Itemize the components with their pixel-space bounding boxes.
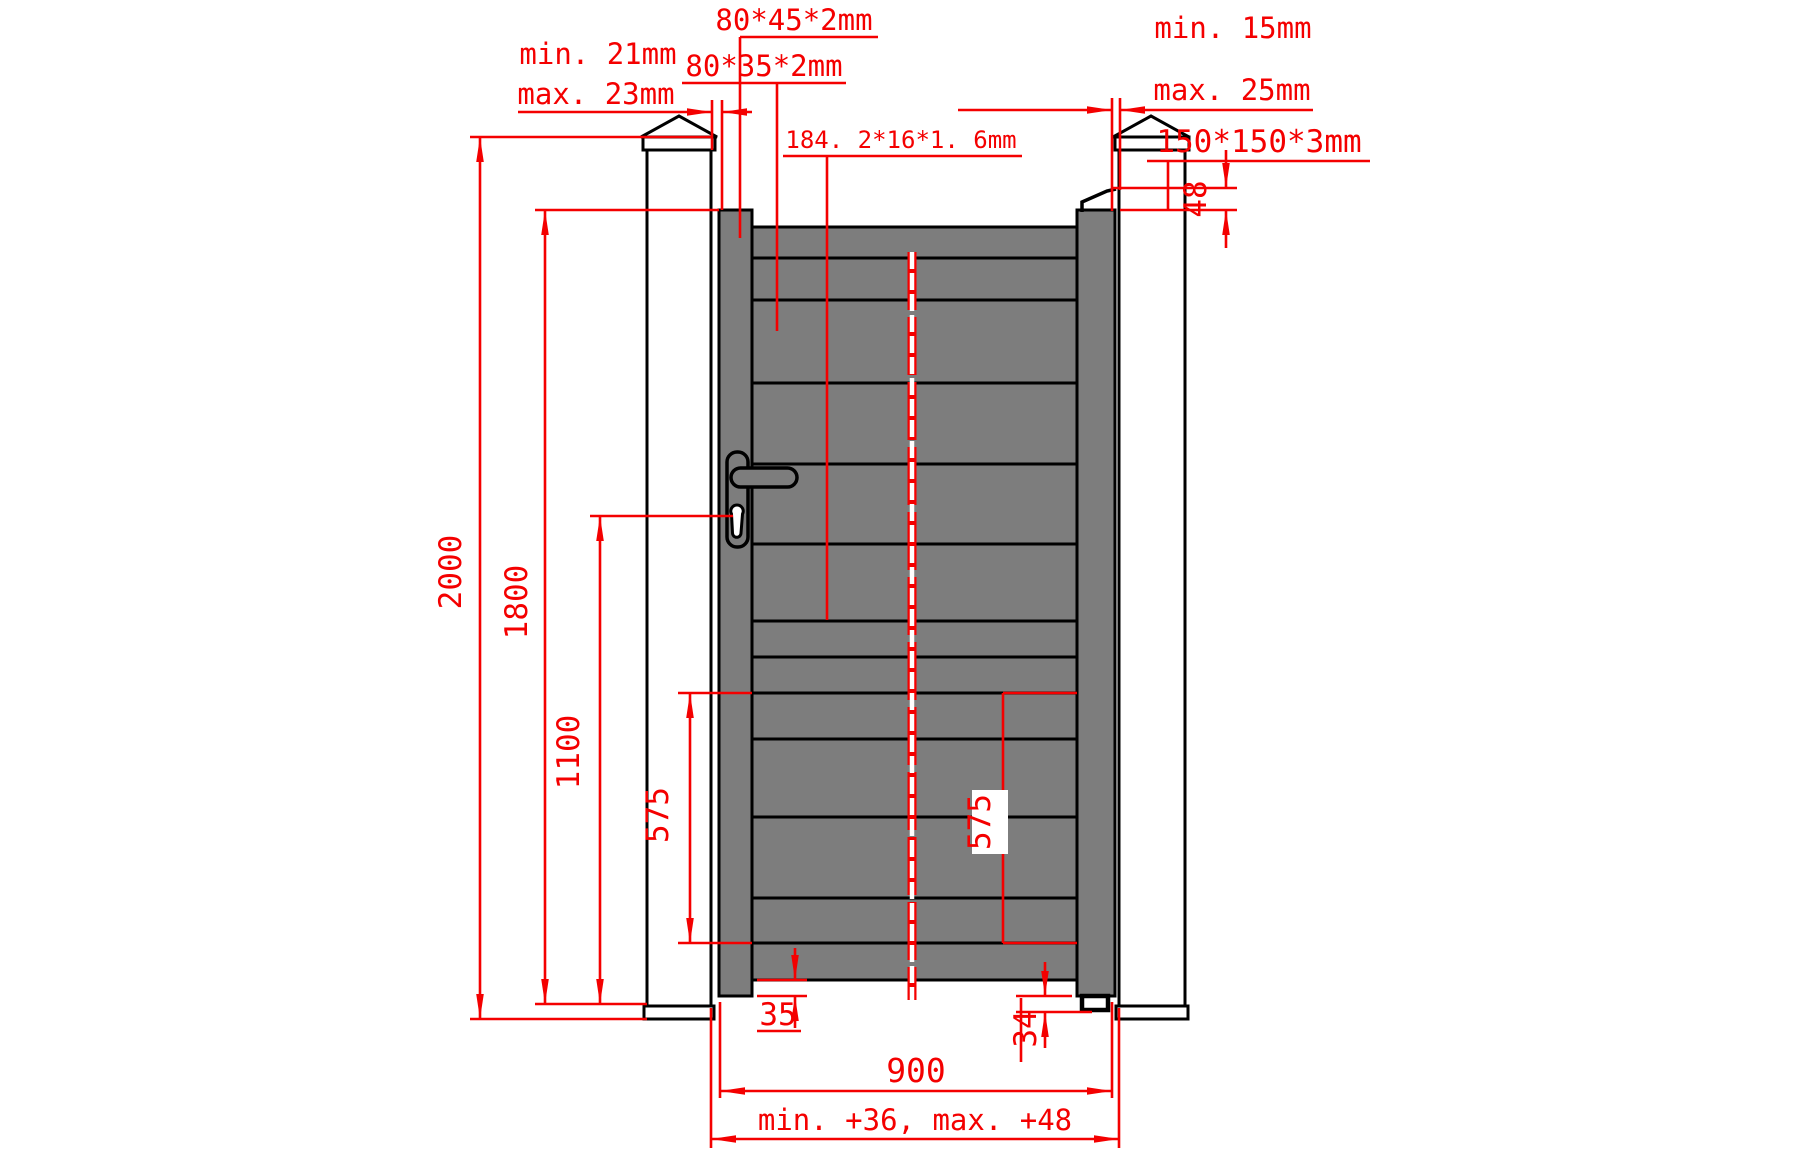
right-post-base	[1116, 1006, 1188, 1019]
left-post-body	[647, 150, 711, 1006]
drop-bolt	[1082, 996, 1108, 1010]
dim-900-label: 900	[886, 1051, 946, 1090]
dim-opening-label: min. +36, max. +48	[758, 1103, 1072, 1137]
gate-leaf	[719, 189, 1116, 1010]
dim-35-label: 35	[759, 997, 796, 1033]
latch-gap-max-label: max. 25mm	[1153, 73, 1310, 107]
right-post-body	[1119, 150, 1185, 1006]
gate-left-stile	[719, 210, 752, 996]
gate-right-stile	[1077, 210, 1115, 996]
latch-gap-min-label: min. 15mm	[1154, 11, 1311, 45]
hinge-gap-min-label: min. 21mm	[519, 37, 676, 71]
callout-stile-profile: 80*45*2mm	[715, 3, 878, 238]
dim-34-label: 34	[1008, 1010, 1044, 1047]
hinge-gap-max-label: max. 23mm	[517, 77, 674, 111]
left-post-cap-band	[643, 137, 715, 150]
technical-drawing-canvas: 2000 1800 1100 575 575 min. 21mm max. 23…	[0, 0, 1800, 1161]
dim-1800-label: 1800	[499, 565, 535, 640]
left-post-cap-icon	[641, 116, 717, 137]
plank-profile-label: 184. 2*16*1. 6mm	[785, 126, 1016, 154]
dim-575-left-label: 575	[640, 787, 676, 843]
dim-2000-label: 2000	[433, 535, 469, 610]
left-post-base	[644, 1006, 714, 1019]
rail-profile-label: 80*35*2mm	[685, 49, 842, 83]
keyhole-icon	[731, 505, 743, 537]
post-profile-label: 150*150*3mm	[1156, 124, 1361, 160]
right-post	[1113, 116, 1189, 1019]
door-handle	[731, 468, 797, 487]
dim-1100-label: 1100	[551, 715, 587, 790]
left-post	[641, 116, 717, 1019]
dim-48-label: 48	[1178, 180, 1214, 217]
gate-drawing-svg: 2000 1800 1100 575 575 min. 21mm max. 23…	[0, 0, 1800, 1161]
stile-profile-label: 80*45*2mm	[715, 3, 872, 37]
dim-575-right-label: 575	[962, 794, 998, 850]
